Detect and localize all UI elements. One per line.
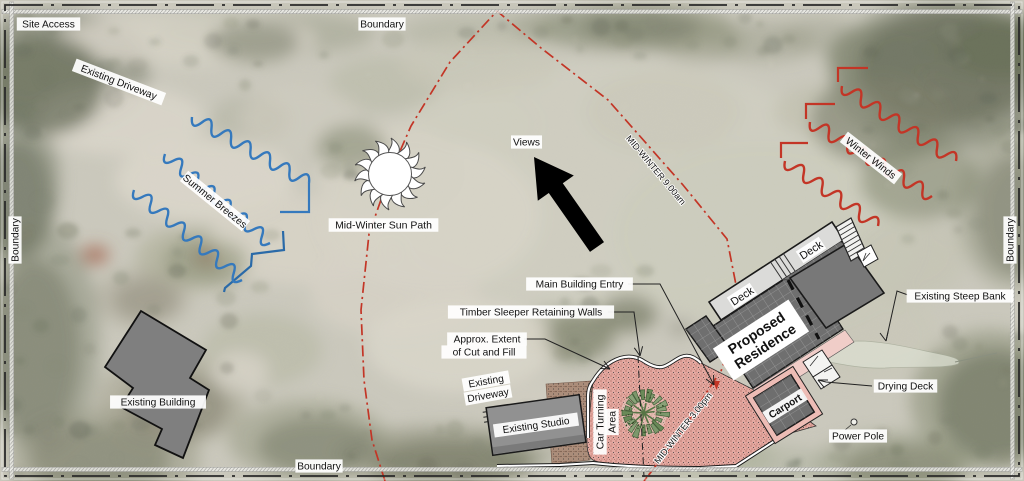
svg-text:Existing Building: Existing Building bbox=[121, 398, 196, 409]
svg-text:of Cut and Fill: of Cut and Fill bbox=[453, 348, 516, 359]
svg-text:Boundary: Boundary bbox=[297, 462, 342, 473]
svg-text:Drying Deck: Drying Deck bbox=[878, 382, 934, 393]
svg-text:Existing Steep Bank: Existing Steep Bank bbox=[914, 292, 1006, 303]
svg-text:Car Turning: Car Turning bbox=[595, 394, 607, 449]
svg-text:Area: Area bbox=[607, 411, 619, 433]
svg-text:Views: Views bbox=[513, 138, 540, 149]
svg-text:Timber Sleeper Retaining Walls: Timber Sleeper Retaining Walls bbox=[460, 308, 603, 319]
svg-text:Mid-Winter Sun Path: Mid-Winter Sun Path bbox=[335, 220, 432, 232]
svg-text:Main Building Entry: Main Building Entry bbox=[536, 280, 625, 291]
svg-text:Site Access: Site Access bbox=[22, 20, 75, 31]
svg-text:Boundary: Boundary bbox=[360, 20, 405, 31]
svg-text:Power Pole: Power Pole bbox=[832, 432, 884, 443]
svg-text:Approx. Extent: Approx. Extent bbox=[454, 335, 521, 346]
svg-text:Boundary: Boundary bbox=[1006, 217, 1017, 262]
svg-text:Boundary: Boundary bbox=[11, 217, 22, 262]
